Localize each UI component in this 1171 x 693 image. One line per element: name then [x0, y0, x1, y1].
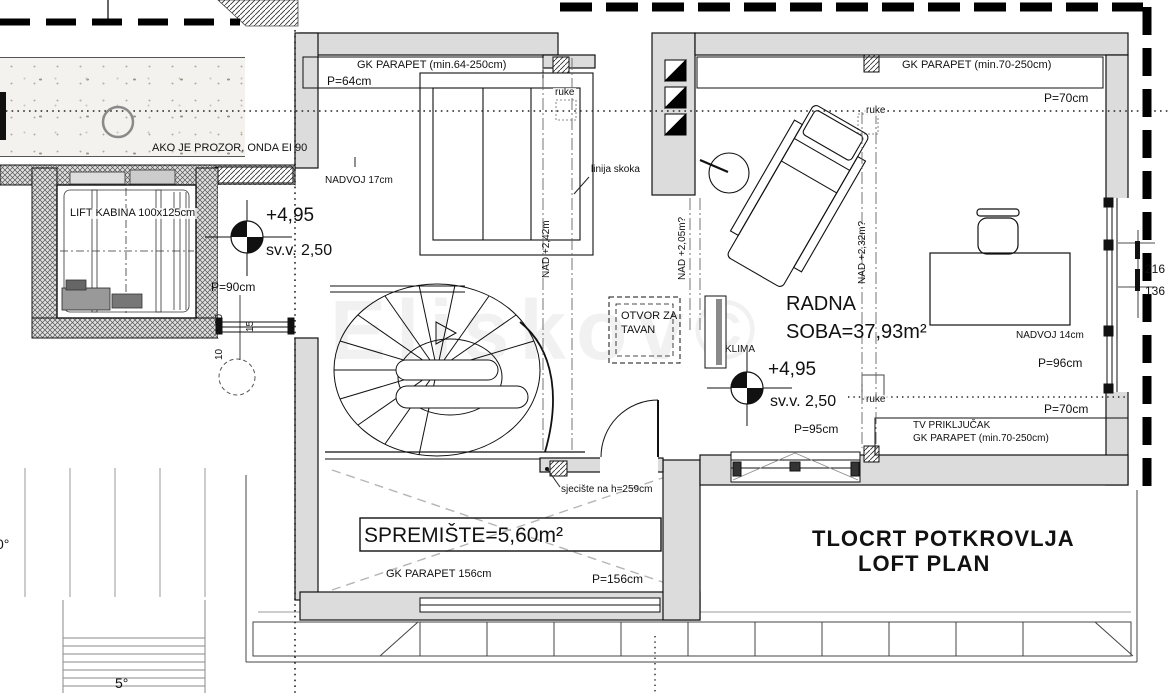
label-nadvoj14: NADVOJ 14cm: [1016, 331, 1084, 341]
label-linija-skoka: linija skoka: [591, 165, 640, 175]
label-ruke-1: ruke: [553, 88, 576, 98]
label-deg5: 5°: [115, 676, 128, 690]
plan-title-line2: LOFT PLAN: [858, 553, 990, 575]
loft-floor-plan: Eliskov©: [0, 0, 1171, 693]
label-lift-kabina: LIFT KABINA 100x125cm: [68, 208, 197, 219]
label-nad-242: NAD +2,42m: [542, 220, 552, 278]
label-gk-parapet-topleft: GK PARAPET (min.64-250cm): [357, 60, 506, 71]
label-dim-10: 10: [215, 349, 225, 360]
label-ako-prozor: AKO JE PROZOR, ONDA EI 90: [152, 143, 307, 154]
chimney-vents: [665, 60, 686, 135]
site-circle: [103, 107, 133, 137]
label-p64: P=64cm: [327, 75, 371, 87]
label-tv-prikljucak: TV PRIKLJUČAK: [913, 421, 990, 431]
lounge-chair: [718, 99, 877, 292]
label-level-right: +4,95: [768, 360, 816, 379]
label-otvor-2: TAVAN: [621, 325, 655, 336]
label-dim-216: 216: [1145, 263, 1165, 275]
label-dim-90: 90: [215, 314, 225, 325]
bed: [420, 73, 593, 255]
label-ruke-2: ruke: [864, 106, 887, 116]
neighbor-steps-bottom: [63, 600, 205, 693]
label-nad-232: NAD +2,32m?: [858, 221, 868, 284]
label-radna-2: SOBA=37,93m²: [786, 322, 927, 342]
label-p96: P=96cm: [1038, 357, 1082, 369]
label-p70-lower: P=70cm: [1044, 403, 1088, 415]
label-p95: P=95cm: [794, 423, 838, 435]
label-gk-parapet-topright: GK PARAPET (min.70-250cm): [902, 60, 1051, 71]
label-p90: P=90cm: [211, 281, 255, 293]
label-sjeciste: sjecište na h=259cm: [561, 485, 652, 495]
door-swing-dashed: [219, 359, 255, 395]
label-dim-136: 136: [1145, 285, 1165, 297]
label-level-left: +4,95: [266, 206, 314, 225]
plan-title-line1: TLOCRT POTKROVLJA: [812, 528, 1075, 550]
label-p70-top: P=70cm: [1044, 92, 1088, 104]
label-gk-parapet-156: GK PARAPET 156cm: [386, 569, 491, 580]
label-dim-15: 15: [246, 321, 256, 332]
window-radna-south: [731, 452, 860, 482]
window-spremiste-south: [420, 598, 660, 612]
label-p156: P=156cm: [592, 573, 643, 585]
label-nad-205: NAD +2,05m?: [678, 217, 688, 280]
label-gk-parapet-bottomright: GK PARAPET (min.70-250cm): [913, 434, 1049, 444]
door-arc: [600, 400, 658, 473]
neighbor-stairs-left: [25, 468, 205, 597]
plan-linework: [0, 0, 1171, 693]
stool: [700, 153, 749, 193]
spiral-stair: [325, 284, 585, 459]
label-svv-right: sv.v. 2,50: [770, 394, 836, 410]
klima-unit: [705, 296, 726, 368]
label-klima: KLIMA: [725, 345, 755, 355]
label-spremiste: SPREMIŠTE=5,60m²: [364, 525, 563, 546]
label-otvor-1: OTVOR ZA: [621, 311, 677, 322]
label-svv-left: sv.v. 2,50: [266, 243, 332, 259]
label-radna-1: RADNA: [786, 294, 856, 314]
label-deg0: 0°: [0, 537, 9, 551]
label-nadvoj17: NADVOJ 17cm: [325, 176, 393, 186]
desk: [930, 209, 1070, 325]
label-ruke-3: ruke: [864, 395, 887, 405]
